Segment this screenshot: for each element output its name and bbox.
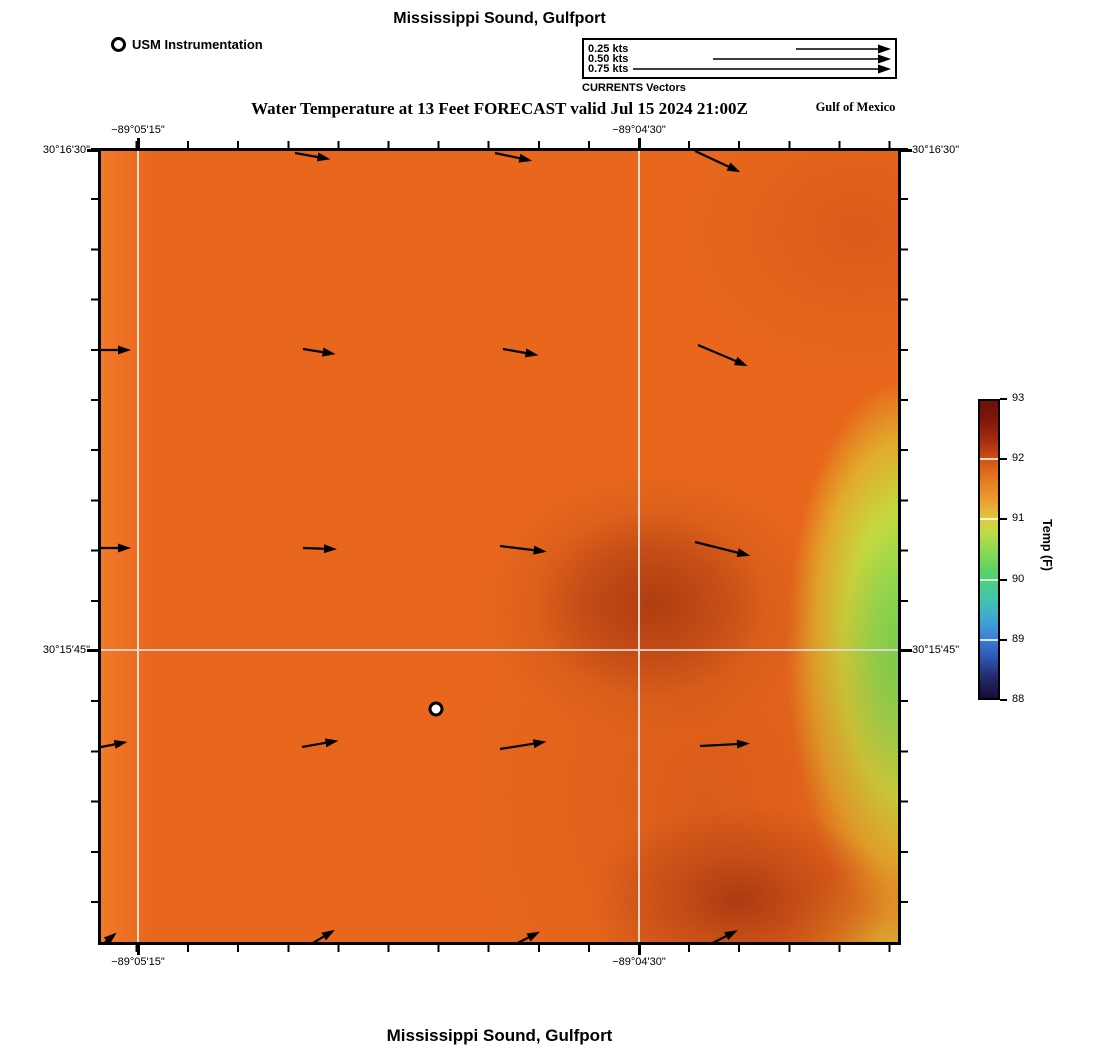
vector-arrow-line: [503, 349, 526, 353]
y-axis-label-right-north: 30°16'30": [912, 144, 959, 156]
colorbar: [978, 399, 1000, 700]
footer-title: Mississippi Sound, Gulfport: [98, 1026, 901, 1046]
y-axis-label-left-south: 30°15'45": [26, 644, 90, 656]
x-axis-label-top-west: −89°05'15": [111, 124, 165, 136]
station-legend: USM Instrumentation: [111, 37, 263, 52]
vector-arrow-line: [700, 744, 737, 746]
axis-tick: [137, 945, 140, 955]
region-label: Gulf of Mexico: [808, 100, 903, 115]
vector-arrow-head: [878, 65, 891, 74]
vector-arrow-line: [101, 744, 115, 748]
y-axis-ticks-left: [91, 148, 98, 945]
vector-arrow-head: [519, 154, 533, 163]
vector-arrow-head: [727, 163, 741, 173]
vector-arrow-line: [695, 151, 729, 167]
axis-tick: [901, 149, 912, 152]
axis-tick: [638, 138, 641, 148]
vector-arrow-head: [878, 45, 891, 54]
station-legend-label: USM Instrumentation: [132, 37, 263, 52]
colorbar-tick: [1000, 398, 1007, 400]
vector-arrow-head: [317, 153, 331, 162]
figure-title: Mississippi Sound, Gulfport: [98, 10, 901, 28]
x-axis-ticks-top: [98, 141, 901, 148]
vector-arrow-head: [526, 932, 540, 942]
vector-arrow-head: [533, 546, 546, 555]
vector-arrow-head: [118, 544, 131, 553]
colorbar-tick: [1000, 699, 1007, 701]
colorbar-tick-label: 92: [1012, 452, 1024, 464]
vector-arrow-head: [734, 357, 748, 366]
vector-arrow-head: [324, 544, 337, 553]
vector-arrow-head: [724, 930, 738, 940]
vector-arrow-line: [303, 548, 324, 549]
colorbar-gradient: [980, 401, 998, 698]
x-axis-label-bottom-east: −89°04'30": [612, 956, 666, 968]
colorbar-tick-label: 89: [1012, 633, 1024, 645]
colorbar-tick-label: 88: [1012, 693, 1024, 705]
vector-arrow-line: [303, 349, 323, 352]
axis-tick: [901, 649, 912, 652]
vector-arrow-line: [101, 941, 107, 942]
vector-arrow-line: [698, 345, 736, 361]
vector-arrow-line: [500, 937, 529, 942]
x-axis-label-bottom-west: −89°05'15": [111, 956, 165, 968]
vector-arrow-line: [495, 153, 519, 158]
vector-arrow-head: [878, 55, 891, 64]
vector-arrow-line: [500, 546, 534, 550]
axis-tick: [638, 945, 641, 955]
colorbar-tick: [1000, 518, 1007, 520]
y-axis-ticks-right: [901, 148, 908, 945]
y-axis-label-left-north: 30°16'30": [26, 144, 90, 156]
vector-arrow-head: [533, 739, 547, 748]
figure-subtitle: Water Temperature at 13 Feet FORECAST va…: [98, 99, 901, 119]
x-axis-ticks-bottom: [98, 945, 901, 952]
axis-tick: [137, 138, 140, 148]
y-axis-label-right-south: 30°15'45": [912, 644, 959, 656]
vector-legend-arrows: [584, 40, 895, 77]
vector-arrow-line: [695, 542, 738, 553]
station-marker: [429, 702, 444, 717]
vector-arrow-line: [302, 743, 326, 747]
vector-arrow-head: [322, 348, 336, 357]
vector-arrow-head: [737, 740, 750, 749]
colorbar-gridline: [980, 458, 998, 460]
colorbar-label: Temp (F): [1040, 519, 1054, 571]
vector-arrow-line: [500, 744, 534, 749]
vector-arrow-line: [295, 153, 318, 157]
vector-arrow-head: [321, 930, 334, 941]
colorbar-gridline: [980, 579, 998, 581]
colorbar-gridline: [980, 518, 998, 520]
vector-arrow-head: [737, 548, 751, 557]
vector-arrow-line: [298, 937, 324, 942]
vector-legend-caption: CURRENTS Vectors: [582, 82, 686, 94]
vector-arrow-line: [695, 936, 726, 942]
colorbar-tick: [1000, 639, 1007, 641]
x-axis-label-top-east: −89°04'30": [612, 124, 666, 136]
vector-arrow-head: [525, 349, 539, 358]
heatmap-plot: [98, 148, 901, 945]
station-marker-icon: [111, 37, 126, 52]
vector-arrow-head: [325, 738, 339, 747]
vector-arrow-head: [118, 346, 131, 355]
current-vector-legend: 0.25 kts 0.50 kts 0.75 kts: [582, 38, 897, 79]
current-vector-arrows: [101, 151, 898, 942]
colorbar-tick-label: 90: [1012, 573, 1024, 585]
forecast-figure: Mississippi Sound, Gulfport USM Instrume…: [0, 0, 1100, 1050]
colorbar-tick: [1000, 579, 1007, 581]
colorbar-gridline: [980, 639, 998, 641]
vector-arrow-head: [114, 740, 128, 749]
colorbar-tick-label: 91: [1012, 512, 1024, 524]
colorbar-tick: [1000, 458, 1007, 460]
colorbar-tick-label: 93: [1012, 392, 1024, 404]
